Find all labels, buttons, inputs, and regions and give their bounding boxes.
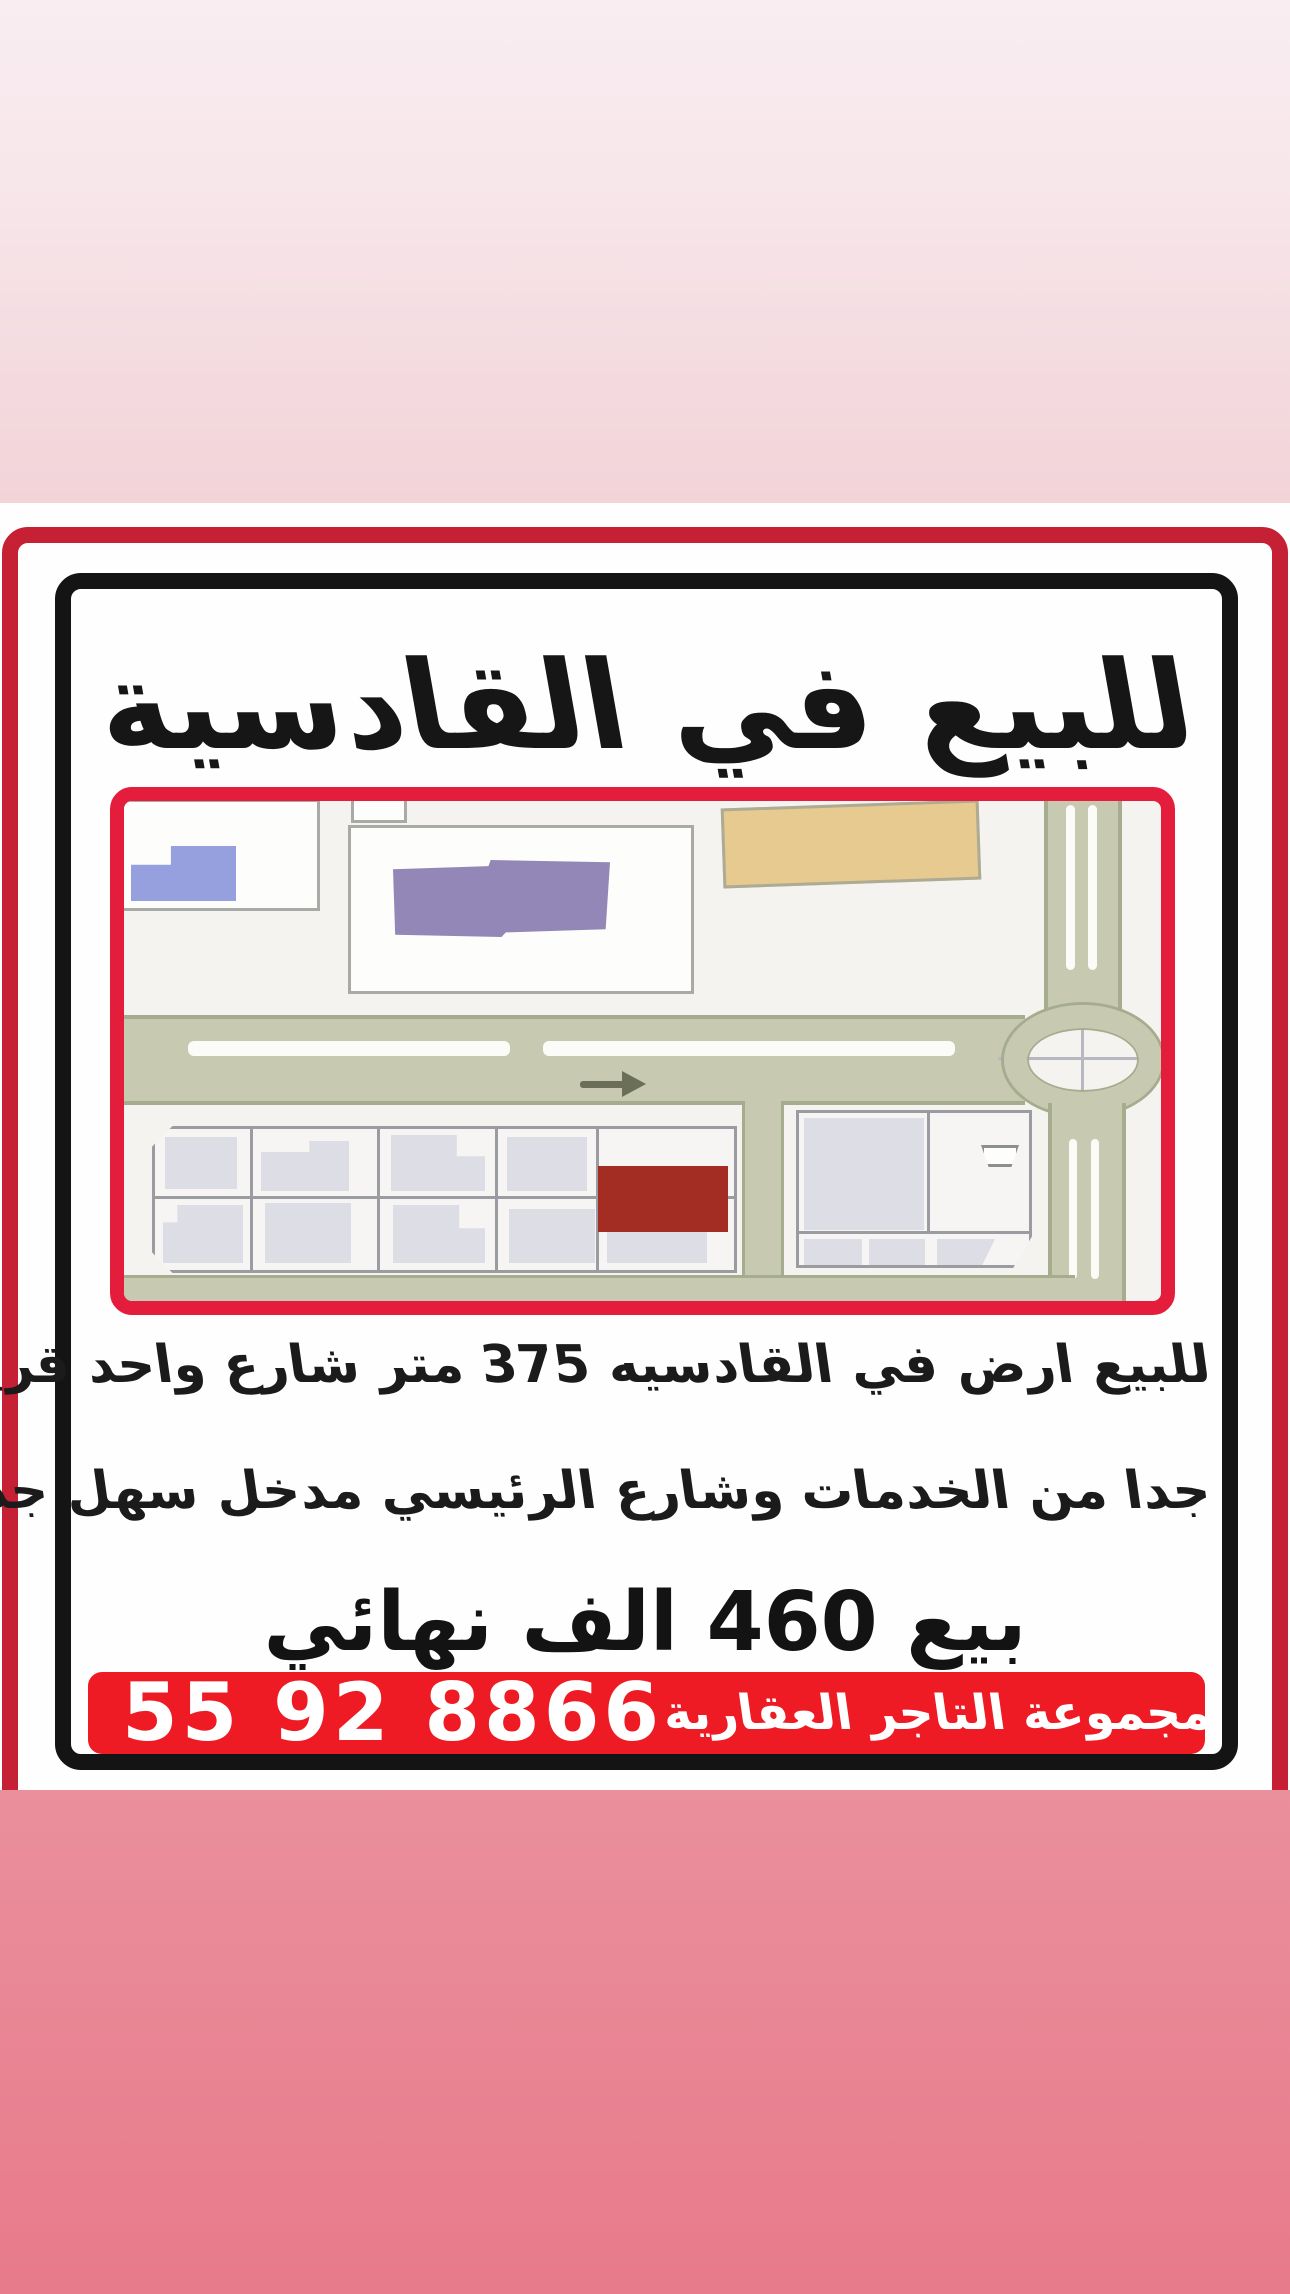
- map-building-gray: [393, 1205, 485, 1263]
- phone-number: 55 92 8866: [122, 1673, 663, 1753]
- map-building-purple: [393, 860, 610, 937]
- map-building-gray: [507, 1137, 587, 1191]
- contact-footer-bar: 55 92 8866 مجموعة التاجر العقارية: [88, 1672, 1205, 1754]
- real-estate-poster: للبيع في القادسية: [0, 503, 1290, 1790]
- map-roundabout: [998, 1001, 1168, 1119]
- map-parcel-tan: [721, 800, 982, 889]
- map-road-median: [188, 1041, 510, 1056]
- map-parcel-block-left: [152, 1126, 737, 1273]
- direction-arrow-icon: [622, 1071, 646, 1097]
- map-building-gray: [165, 1137, 237, 1189]
- map-building-gray: [804, 1239, 862, 1265]
- parcel-divider: [250, 1129, 253, 1270]
- map-parcel-tiny: [351, 795, 407, 823]
- location-map: [110, 787, 1175, 1315]
- parcel-divider: [495, 1129, 498, 1270]
- parcel-divider: [799, 1231, 1029, 1234]
- story-screenshot: للبيع في القادسية: [0, 0, 1290, 2294]
- description-line-1: للبيع ارض في القادسيه 375 متر شارع واحد …: [76, 1335, 1214, 1395]
- map-parcel-block-right: [796, 1110, 1032, 1268]
- map-canvas: [124, 801, 1161, 1301]
- map-building-gray: [163, 1205, 243, 1263]
- map-building-gray: [509, 1209, 595, 1263]
- map-road-vertical-top: [1044, 797, 1122, 1021]
- map-road-median: [1069, 1139, 1077, 1279]
- map-road-vertical-bottom: [1048, 1103, 1126, 1303]
- map-road-bottom: [120, 1275, 1075, 1303]
- price-line: بيع 460 الف نهائي: [80, 1575, 1210, 1670]
- map-road-horizontal-main: [120, 1015, 1025, 1105]
- map-building-gray: [391, 1135, 485, 1191]
- plot-marker-trapezoid-icon: [981, 1145, 1019, 1167]
- direction-arrow-icon: [580, 1081, 626, 1088]
- company-name: مجموعة التاجر العقارية: [660, 1689, 1214, 1737]
- map-road-connector: [742, 1101, 784, 1281]
- map-roundabout-ring: [1004, 1005, 1162, 1115]
- map-building-gray: [869, 1239, 925, 1265]
- map-road-median: [1091, 1139, 1099, 1279]
- map-road-median: [1088, 805, 1097, 970]
- map-building-gray: [804, 1118, 924, 1230]
- highlighted-plot-for-sale: [598, 1166, 728, 1232]
- parcel-divider: [377, 1129, 380, 1270]
- parcel-divider: [927, 1113, 930, 1233]
- map-building-gray: [265, 1203, 351, 1263]
- description-line-2: جدا من الخدمات وشارع الرئيسي مدخل سهل جد…: [76, 1461, 1214, 1521]
- map-building-gray: [261, 1141, 349, 1191]
- map-road-median: [1066, 805, 1075, 970]
- map-building-gray: [937, 1239, 995, 1265]
- poster-title: للبيع في القادسية: [58, 611, 1232, 801]
- map-road-median: [543, 1041, 955, 1056]
